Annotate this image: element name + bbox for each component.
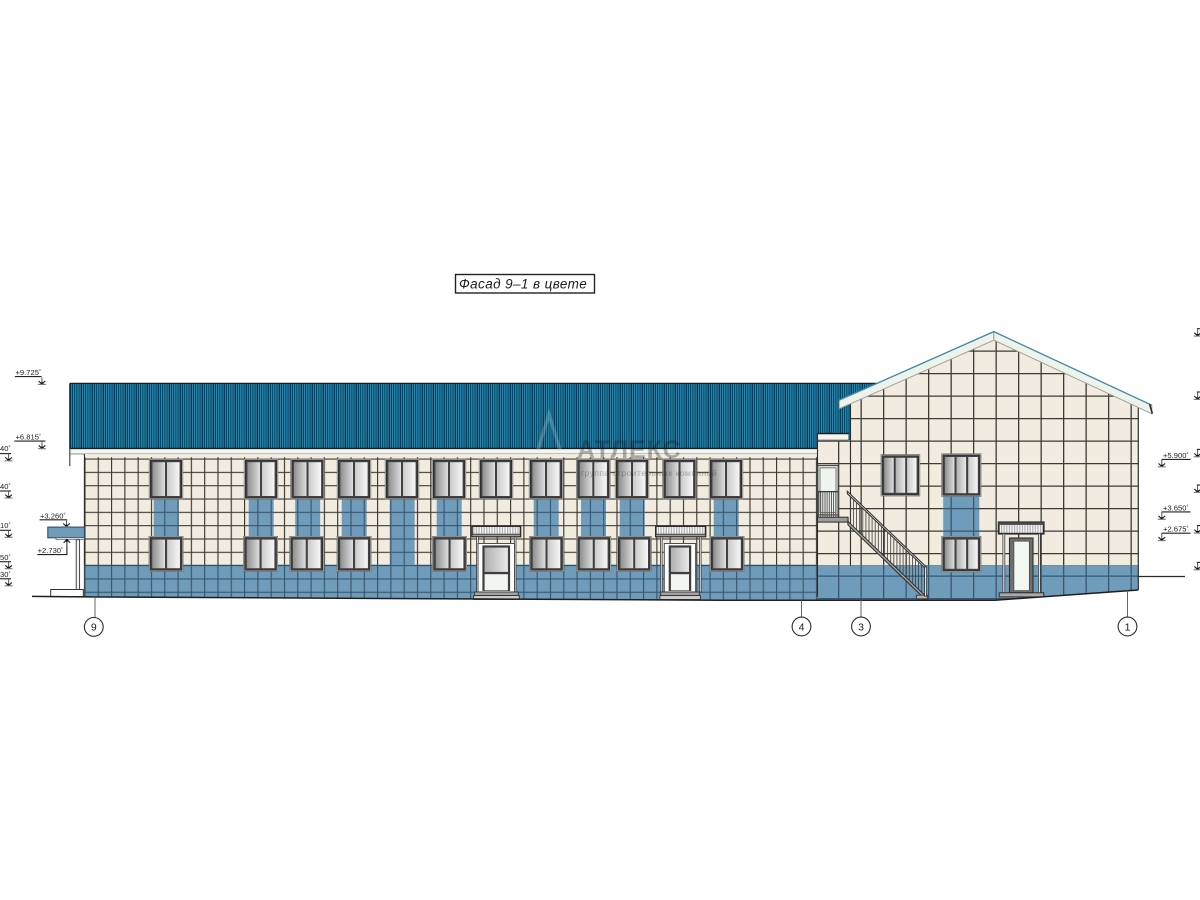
svg-text:9: 9 — [91, 622, 97, 634]
svg-text:1: 1 — [1125, 621, 1131, 633]
svg-text:+9.725°: +9.725° — [16, 368, 41, 377]
svg-text:Фасад 9–1 в цвете: Фасад 9–1 в цвете — [459, 277, 587, 292]
svg-text:+2.730°: +2.730° — [38, 546, 63, 555]
svg-text:+2.675°: +2.675° — [1163, 525, 1188, 534]
svg-text:АТЛЕКС: АТЛЕКС — [577, 436, 682, 464]
svg-text:группа строительных компаний: группа строительных компаний — [581, 468, 717, 478]
svg-text:3: 3 — [858, 621, 864, 633]
svg-text:+5.900°: +5.900° — [1163, 451, 1188, 460]
svg-text:+3.650°: +3.650° — [1163, 503, 1188, 512]
svg-text:+6.815°: +6.815° — [16, 433, 41, 442]
svg-text:4: 4 — [799, 621, 805, 633]
svg-text:+3.260°: +3.260° — [40, 511, 65, 520]
